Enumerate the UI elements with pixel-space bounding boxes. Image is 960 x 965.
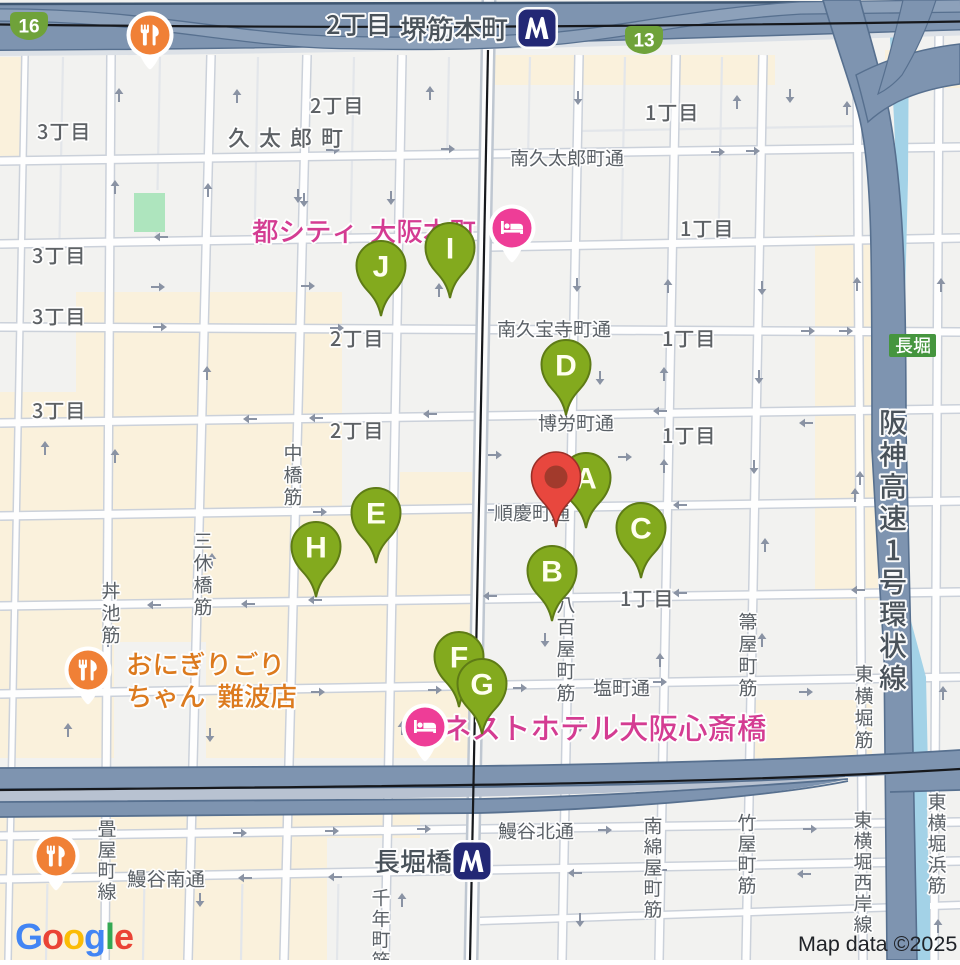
svg-text:B: B bbox=[541, 556, 563, 589]
svg-text:13: 13 bbox=[633, 31, 654, 52]
svg-text:C: C bbox=[630, 513, 652, 546]
svg-text:I: I bbox=[446, 233, 454, 266]
svg-text:D: D bbox=[555, 350, 577, 383]
svg-text:E: E bbox=[366, 498, 386, 531]
svg-text:g: g bbox=[84, 916, 106, 957]
svg-text:H: H bbox=[305, 532, 327, 565]
svg-text:J: J bbox=[373, 251, 390, 284]
svg-text:Map data ©2025: Map data ©2025 bbox=[798, 932, 957, 956]
svg-text:o: o bbox=[42, 916, 64, 957]
svg-text:e: e bbox=[114, 916, 134, 957]
svg-text:o: o bbox=[63, 916, 85, 957]
svg-text:16: 16 bbox=[18, 17, 39, 38]
svg-text:G: G bbox=[15, 916, 43, 957]
svg-text:G: G bbox=[470, 669, 493, 702]
